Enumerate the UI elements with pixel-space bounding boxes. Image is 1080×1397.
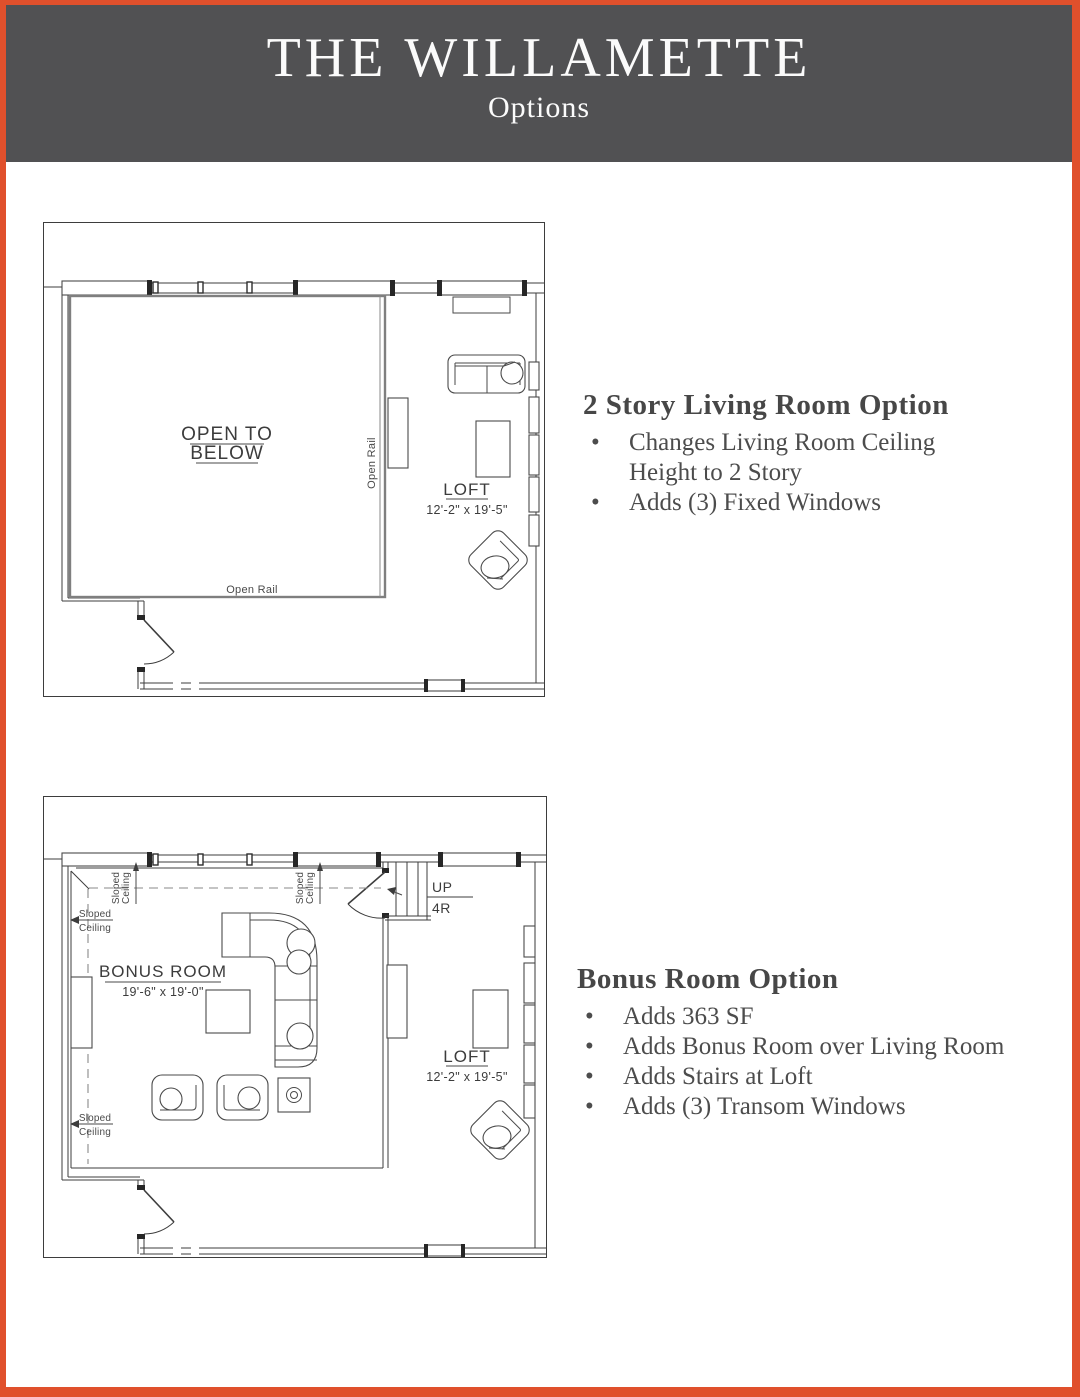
section-2story-bullets: Changes Living Room Ceiling Height to 2 … bbox=[583, 428, 983, 518]
loft-label: LOFT bbox=[443, 480, 490, 499]
bonus-room-label: BONUS ROOM bbox=[99, 962, 227, 981]
plan1-door bbox=[144, 620, 174, 664]
ceiling-label: Ceiling bbox=[121, 872, 132, 904]
bullet-item: Adds Stairs at Loft bbox=[577, 1062, 1067, 1092]
section-2story-option: 2 Story Living Room Option Changes Livin… bbox=[583, 388, 983, 518]
plan1-labels: OPEN TO BELOW Open Rail Open Rail LOFT 1… bbox=[181, 424, 508, 596]
open-rail-bottom-label: Open Rail bbox=[226, 584, 278, 596]
page-subtitle: Options bbox=[6, 89, 1072, 127]
ceiling-label: Ceiling bbox=[79, 1127, 111, 1138]
ceiling-label: Ceiling bbox=[79, 923, 111, 934]
loft-dims-label: 12'-2" x 19'-5" bbox=[426, 503, 507, 517]
open-rail-side-label: Open Rail bbox=[366, 437, 378, 489]
section-bonus-option: Bonus Room Option Adds 363 SF Adds Bonus… bbox=[577, 962, 1067, 1122]
floor-plan-bonus-option: Sloped Ceiling Sloped Ceiling Sloped Cei… bbox=[43, 796, 547, 1263]
floor-plan-bonus-svg: Sloped Ceiling Sloped Ceiling Sloped Cei… bbox=[43, 796, 547, 1258]
bullet-item: Adds (3) Fixed Windows bbox=[583, 488, 983, 518]
up-label: UP bbox=[432, 879, 452, 895]
plan2-exterior-door bbox=[144, 1190, 174, 1234]
header: THE WILLAMETTE Options bbox=[6, 5, 1072, 162]
page-title: THE WILLAMETTE bbox=[6, 5, 1072, 89]
bullet-item: Adds 363 SF bbox=[577, 1002, 1067, 1032]
floor-plan-2story-svg: OPEN TO BELOW Open Rail Open Rail LOFT 1… bbox=[43, 222, 545, 697]
risers-label: 4R bbox=[432, 900, 451, 916]
plan2-furniture bbox=[71, 913, 535, 1163]
bullet-item: Adds Bonus Room over Living Room bbox=[577, 1032, 1067, 1062]
sloped-label: Sloped bbox=[79, 909, 111, 920]
bullet-item: Changes Living Room Ceiling Height to 2 … bbox=[583, 428, 983, 488]
section-2story-heading: 2 Story Living Room Option bbox=[583, 388, 983, 422]
plan1-furniture bbox=[388, 297, 539, 593]
bonus-room-dims-label: 19'-6" x 19'-0" bbox=[122, 985, 203, 999]
bullet-item: Adds (3) Transom Windows bbox=[577, 1092, 1067, 1122]
open-to-below-label-line1: OPEN TO bbox=[181, 424, 273, 445]
loft-label: LOFT bbox=[443, 1047, 490, 1066]
sloped-label: Sloped bbox=[79, 1113, 111, 1124]
floor-plan-2story-option: OPEN TO BELOW Open Rail Open Rail LOFT 1… bbox=[43, 222, 545, 702]
open-to-below-label-line2: BELOW bbox=[190, 443, 264, 464]
plan2-stairs bbox=[348, 862, 473, 920]
loft-dims-label: 12'-2" x 19'-5" bbox=[426, 1070, 507, 1084]
page: THE WILLAMETTE Options bbox=[0, 0, 1080, 1397]
ceiling-label: Ceiling bbox=[305, 872, 316, 904]
section-bonus-bullets: Adds 363 SF Adds Bonus Room over Living … bbox=[577, 1002, 1067, 1122]
section-bonus-heading: Bonus Room Option bbox=[577, 962, 1067, 996]
